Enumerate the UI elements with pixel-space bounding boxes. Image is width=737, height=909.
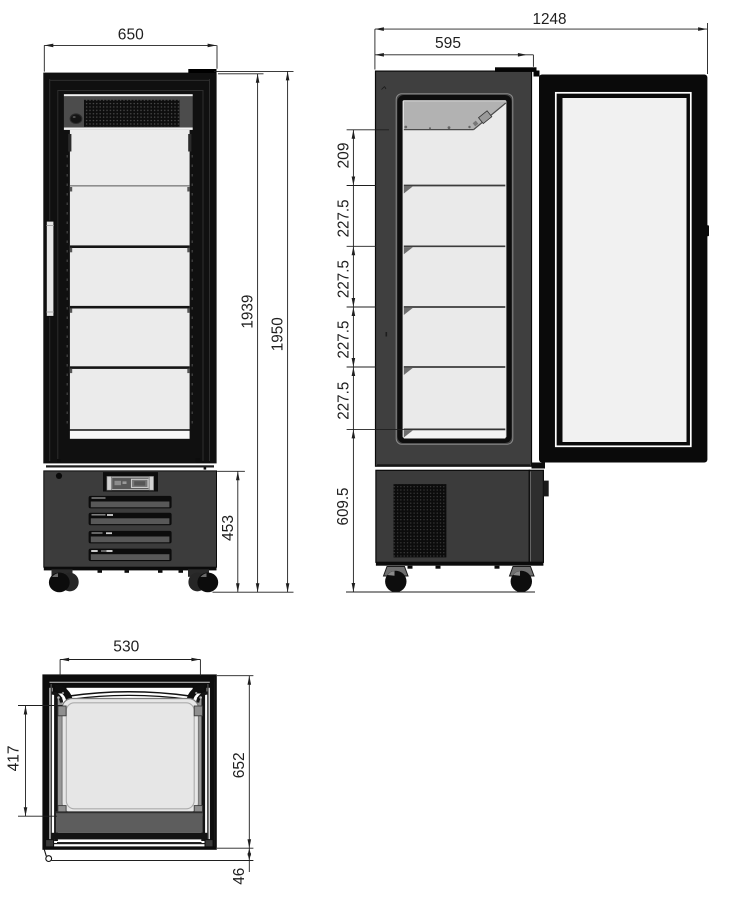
svg-text:209: 209 <box>335 142 352 168</box>
svg-text:227.5: 227.5 <box>335 260 352 298</box>
svg-text:595: 595 <box>435 35 461 52</box>
svg-text:227.5: 227.5 <box>335 199 352 237</box>
svg-text:417: 417 <box>6 745 23 771</box>
svg-text:609.5: 609.5 <box>335 487 352 525</box>
svg-text:530: 530 <box>113 639 139 656</box>
svg-text:1950: 1950 <box>270 317 287 351</box>
svg-text:227.5: 227.5 <box>335 321 352 359</box>
svg-text:46: 46 <box>231 868 248 885</box>
svg-text:650: 650 <box>118 27 144 44</box>
svg-text:652: 652 <box>231 752 248 778</box>
svg-text:1939: 1939 <box>240 295 257 329</box>
svg-text:453: 453 <box>220 515 237 541</box>
svg-text:1248: 1248 <box>533 11 567 28</box>
svg-text:227.5: 227.5 <box>335 382 352 420</box>
